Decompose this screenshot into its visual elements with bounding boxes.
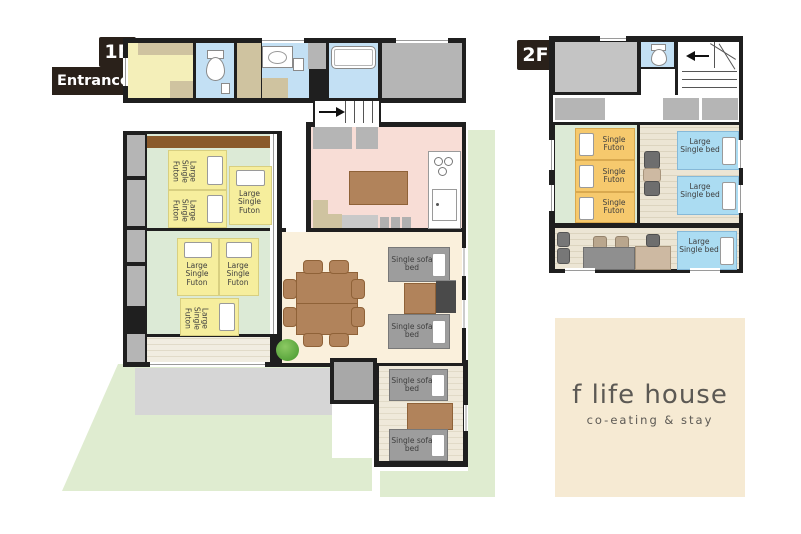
washbasin-icon: [262, 46, 293, 68]
futon-1f-1: Large Single Futon: [168, 150, 227, 190]
window: [549, 185, 554, 211]
cabinet-icon: [557, 248, 570, 264]
entrance-door: [123, 58, 128, 86]
floor2-label: 2F: [522, 44, 548, 66]
window: [600, 36, 626, 41]
stool-icon: [646, 234, 660, 247]
closet-2f: [555, 98, 605, 120]
engawa-window: [150, 362, 265, 367]
closet-1f: [127, 230, 145, 262]
closet-1f: [127, 180, 145, 226]
hall-2f: [641, 69, 675, 95]
staircase-1f: [313, 99, 381, 129]
entrance-label: Entrance: [57, 73, 130, 89]
window: [565, 268, 595, 273]
sofa-bed-label: Single sofa bed: [391, 437, 433, 454]
washer-box: [293, 58, 304, 71]
kitchen-counter-l2: [313, 214, 342, 228]
kitchen-closet: [356, 127, 378, 149]
window: [738, 185, 743, 213]
window: [464, 405, 468, 431]
stool-icon: [644, 181, 660, 196]
kitchen: [311, 127, 462, 228]
window: [690, 268, 720, 273]
logo-title: f life house: [572, 380, 728, 410]
window: [462, 248, 466, 276]
sofa-bed-2: Single sofa bed: [388, 314, 450, 349]
sunroom-table: [407, 403, 453, 430]
window: [262, 38, 304, 43]
washroom-cabinet: [308, 43, 326, 69]
futon-2f-3: Single Futon: [575, 192, 635, 223]
kitchen-island-table: [349, 171, 408, 205]
dining-chair: [283, 307, 297, 327]
side-table: [643, 168, 661, 182]
closet-1f: [127, 135, 145, 176]
corridor: [282, 131, 306, 228]
closet-br: [334, 362, 373, 400]
sofa-bed-label: Single sofa bed: [390, 256, 434, 273]
sofa-bed-4: Single sofa bed: [389, 429, 448, 461]
work-table-gray: [583, 247, 635, 270]
engawa-veranda: [147, 337, 270, 362]
futon-label: Single Futon: [597, 168, 631, 185]
sofa-bed-label: Single sofa bed: [391, 377, 433, 394]
toilet-bowl-1f-icon: [206, 57, 225, 81]
lawn-garden-ext: [332, 458, 372, 491]
hall-closet-strip: [237, 43, 261, 98]
bathtub-icon: [331, 46, 376, 69]
floor-plan-canvas: 1F Entrance: [0, 0, 801, 534]
storage-room-1f: [382, 43, 462, 98]
closet-1f: [127, 334, 145, 362]
wardrobe-strip: [147, 136, 270, 148]
futon-label: Large Single Futon: [230, 190, 269, 215]
plant-icon: [276, 339, 299, 361]
futon-1f-3: Large Single Futon: [229, 166, 272, 225]
window: [738, 140, 743, 168]
entrance-shelf: [138, 43, 193, 55]
kitchen-appliance: [391, 217, 400, 228]
entrance-step: [170, 81, 193, 98]
futon-1f-5: Large Single Futon: [219, 238, 259, 296]
futon-1f-2: Large Single Futon: [168, 190, 227, 228]
dining-chair: [303, 260, 323, 274]
futon-label: Large Single Futon: [220, 262, 256, 287]
stove-icon: [433, 157, 455, 177]
kitchen-appliance: [380, 217, 389, 228]
garden-strip-bottom: [380, 471, 495, 497]
toilet-room-2f: [641, 42, 674, 67]
dining-chair: [351, 279, 365, 299]
bed-label: Large Single bed: [680, 183, 720, 200]
closet-1f: [127, 266, 145, 306]
stair-hall-2f: [678, 42, 739, 95]
bed-2f-1: Large Single bed: [677, 131, 739, 170]
dining-door: [286, 228, 306, 232]
shoji-window-strip: [270, 134, 277, 334]
kitchen-lower-counter: [342, 215, 378, 228]
bathroom: [329, 43, 378, 98]
terrace: [135, 368, 332, 415]
futon-label: Large Single Futon: [172, 153, 197, 189]
cabinet-icon: [557, 232, 570, 247]
dining-table: [296, 272, 358, 335]
kitchen-closet: [313, 127, 352, 149]
futon-label: Single Futon: [597, 199, 631, 216]
stair-arrow-left: [686, 51, 695, 61]
dining-chair: [329, 260, 349, 274]
bed-2f-2: Large Single bed: [677, 176, 739, 215]
storage-room-2f: [555, 42, 637, 92]
washroom: [262, 43, 309, 98]
futon-label: Large Single Futon: [184, 300, 209, 336]
bed-label: Large Single bed: [680, 138, 720, 155]
dining-chair: [303, 333, 323, 347]
stair-arrow-right: [336, 107, 345, 117]
window: [396, 38, 448, 43]
futon-1f-4: Large Single Futon: [177, 238, 219, 296]
washroom-counter: [262, 78, 288, 98]
futon-label: Single Futon: [597, 136, 631, 153]
futon-1f-6: Large Single Futon: [180, 298, 239, 336]
entrance-room: [128, 43, 193, 98]
futon-2f-2: Single Futon: [575, 160, 635, 192]
futon-2f-1: Single Futon: [575, 128, 635, 160]
futon-label: Large Single Futon: [172, 192, 197, 228]
window: [549, 140, 554, 170]
toilet-bowl-2f-icon: [651, 49, 667, 66]
work-table-tan: [635, 246, 671, 270]
sofa-side-table: [404, 283, 436, 314]
window: [462, 300, 466, 328]
dining-chair: [283, 279, 297, 299]
bed-label: Large Single bed: [679, 238, 719, 255]
tv-unit: [436, 280, 456, 313]
kitchen-sink-icon: [432, 189, 457, 221]
brand-logo: f life house co-eating & stay: [555, 318, 745, 497]
closet-2f: [702, 98, 738, 120]
futon-label: Large Single Futon: [178, 262, 216, 287]
garden-strip-right: [468, 130, 495, 497]
bed-2f-3: Large Single bed: [677, 231, 737, 270]
toilet-paper-holder: [221, 83, 230, 94]
toilet-room-1f: [196, 43, 234, 98]
logo-subtitle: co-eating & stay: [587, 413, 714, 427]
sofa-bed-1: Single sofa bed: [388, 247, 450, 282]
dining-chair: [351, 307, 365, 327]
closet-2f: [663, 98, 699, 120]
kitchen-appliance: [402, 217, 411, 228]
sofa-bed-label: Single sofa bed: [390, 323, 434, 340]
dining-chair: [329, 333, 349, 347]
sofa-bed-3: Single sofa bed: [389, 369, 448, 401]
stool-icon: [644, 151, 660, 169]
